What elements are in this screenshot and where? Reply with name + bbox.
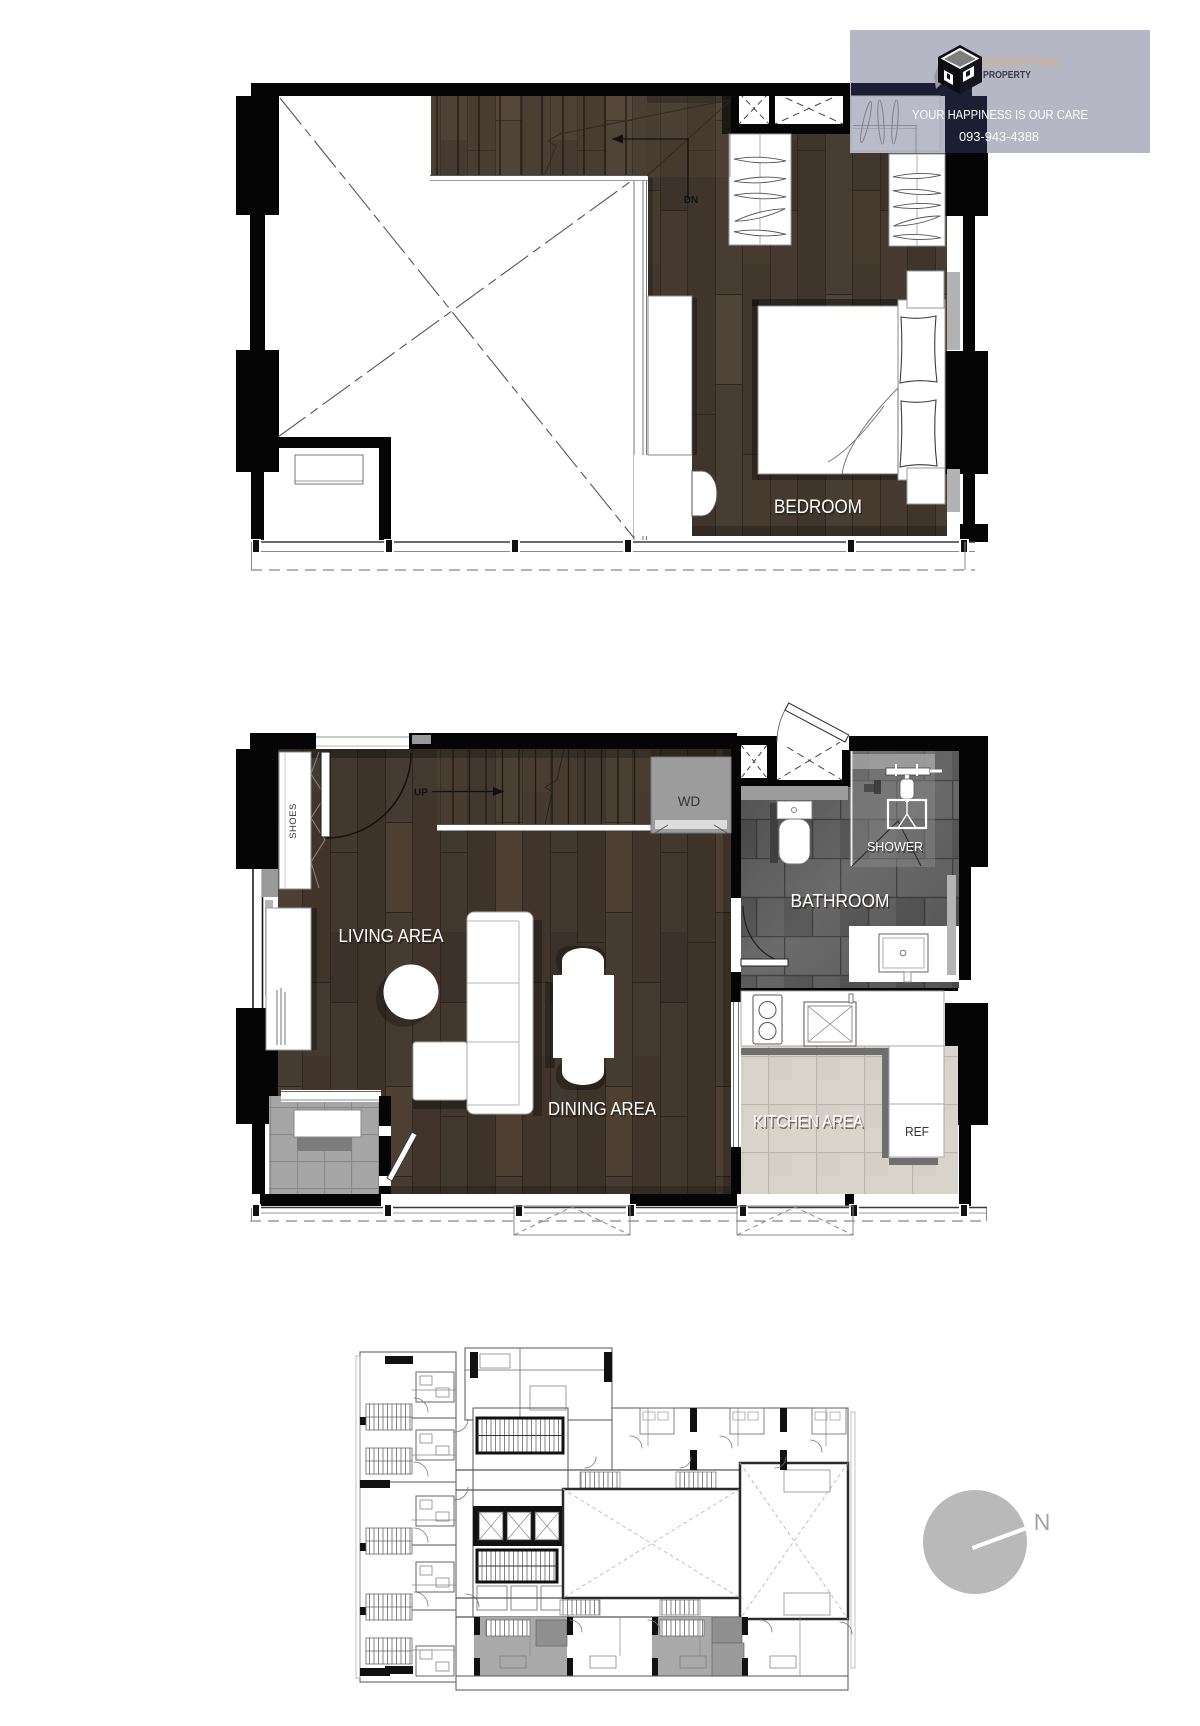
svg-text:BATHROOM: BATHROOM <box>791 890 890 911</box>
svg-text:WD: WD <box>678 794 701 809</box>
svg-text:N: N <box>1034 1509 1051 1535</box>
svg-text:KITCHEN AREA: KITCHEN AREA <box>753 1111 863 1131</box>
svg-text:YOUR HAPPINESS IS OUR CARE: YOUR HAPPINESS IS OUR CARE <box>912 108 1088 122</box>
svg-text:PROPERTY: PROPERTY <box>983 69 1031 81</box>
svg-text:SHOES: SHOES <box>288 803 299 839</box>
svg-text:DINING AREA: DINING AREA <box>548 1099 656 1119</box>
svg-text:BEDROOM: BEDROOM <box>774 497 862 518</box>
svg-text:LIVING AREA: LIVING AREA <box>339 926 444 946</box>
svg-text:SHOWER: SHOWER <box>867 840 923 854</box>
svg-text:UP: UP <box>414 788 428 799</box>
svg-text:BANGKOK PRIME: BANGKOK PRIME <box>983 57 1059 68</box>
svg-text:DN: DN <box>684 195 698 206</box>
svg-text:REF: REF <box>905 1124 929 1139</box>
svg-text:093-943-4388: 093-943-4388 <box>959 130 1039 144</box>
